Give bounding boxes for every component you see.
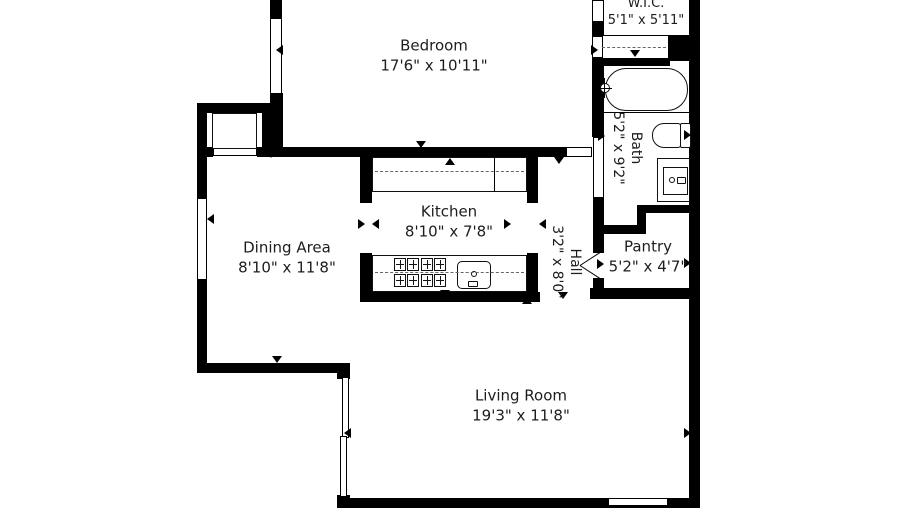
marker-arrow-icon bbox=[276, 45, 283, 55]
stove-burner-icon bbox=[407, 274, 419, 287]
wall bbox=[593, 225, 646, 234]
window-or-door bbox=[340, 436, 347, 497]
fixture-outline bbox=[468, 281, 478, 287]
marker-arrow-icon bbox=[591, 45, 598, 55]
room-name: Kitchen bbox=[405, 203, 493, 223]
window-or-door bbox=[270, 18, 282, 94]
marker-arrow-icon bbox=[518, 500, 528, 507]
room-dimensions: 8'10" x 11'8" bbox=[238, 258, 336, 278]
fixture-outline bbox=[652, 123, 681, 148]
room-dimensions: 3'2" x 8'0" bbox=[548, 225, 566, 298]
thin-line bbox=[494, 157, 495, 192]
room-name: Bedroom bbox=[380, 37, 487, 57]
stove-burner-icon bbox=[421, 258, 433, 271]
stove-burner-icon bbox=[394, 274, 406, 287]
marker-arrow-icon bbox=[416, 141, 426, 148]
marker-arrow-icon bbox=[654, 288, 664, 295]
wall bbox=[592, 22, 604, 36]
stove-burner-icon bbox=[421, 274, 433, 287]
closet-dashed-line bbox=[375, 272, 524, 273]
wall bbox=[197, 363, 350, 373]
marker-arrow-icon bbox=[504, 219, 511, 229]
room-dimensions: 8'10" x 7'8" bbox=[405, 222, 493, 242]
room-label-pantry: Pantry 5'2" x 4'7" bbox=[609, 238, 688, 277]
marker-arrow-icon bbox=[440, 290, 450, 297]
room-dimensions: 17'6" x 10'11" bbox=[380, 56, 487, 76]
floor-plan: Bedroom 17'6" x 10'11" W.I.C. 5'1" x 5'1… bbox=[0, 0, 900, 529]
window-or-door bbox=[592, 0, 604, 22]
wall bbox=[360, 147, 372, 203]
wall bbox=[593, 234, 604, 253]
room-label-bath: Bath 5'2" x 9'2" bbox=[609, 111, 645, 184]
wall bbox=[257, 147, 566, 157]
stove-burner-icon bbox=[434, 274, 446, 287]
wall bbox=[592, 58, 604, 137]
room-dimensions: 5'2" x 4'7" bbox=[609, 257, 688, 277]
wall bbox=[270, 0, 282, 20]
wall bbox=[590, 288, 690, 299]
wall bbox=[360, 292, 540, 302]
marker-arrow-icon bbox=[539, 219, 546, 229]
window-or-door bbox=[608, 498, 668, 506]
room-name: W.I.C. bbox=[608, 0, 684, 13]
window-or-door bbox=[566, 147, 592, 157]
window-or-door bbox=[197, 198, 207, 280]
stove-burner-icon bbox=[394, 258, 406, 271]
stove-burner-icon bbox=[407, 258, 419, 271]
room-name: Dining Area bbox=[238, 239, 336, 259]
room-dimensions: 5'1" x 5'11" bbox=[608, 13, 684, 30]
marker-arrow-icon bbox=[344, 428, 351, 438]
fixture-outline bbox=[212, 113, 257, 149]
marker-arrow-icon bbox=[445, 158, 455, 165]
marker-arrow-icon bbox=[684, 130, 691, 140]
closet-dashed-line bbox=[375, 171, 524, 172]
room-name: Pantry bbox=[609, 238, 688, 258]
room-label-dining: Dining Area 8'10" x 11'8" bbox=[238, 239, 336, 278]
window-or-door bbox=[593, 137, 604, 198]
wall bbox=[668, 35, 689, 61]
marker-arrow-icon bbox=[272, 356, 282, 363]
room-label-living: Living Room 19'3" x 11'8" bbox=[472, 387, 570, 426]
fixture-circle bbox=[669, 177, 675, 183]
marker-arrow-icon bbox=[597, 259, 604, 269]
room-name: Bath bbox=[627, 111, 645, 184]
marker-arrow-icon bbox=[358, 219, 365, 229]
wall bbox=[197, 147, 213, 157]
thin-line bbox=[597, 88, 612, 89]
room-label-kitchen: Kitchen 8'10" x 7'8" bbox=[405, 203, 493, 242]
room-dimensions: 5'2" x 9'2" bbox=[609, 111, 627, 184]
marker-arrow-icon bbox=[266, 151, 276, 158]
marker-arrow-icon bbox=[630, 50, 640, 57]
wall bbox=[527, 147, 538, 203]
stove-burner-icon bbox=[434, 258, 446, 271]
fixture-outline bbox=[677, 177, 686, 184]
wall bbox=[592, 58, 670, 66]
room-label-bedroom: Bedroom 17'6" x 10'11" bbox=[380, 37, 487, 76]
room-dimensions: 19'3" x 11'8" bbox=[472, 406, 570, 426]
marker-arrow-icon bbox=[372, 219, 379, 229]
marker-arrow-icon bbox=[522, 297, 532, 304]
room-name: Living Room bbox=[472, 387, 570, 407]
marker-arrow-icon bbox=[684, 428, 691, 438]
marker-arrow-icon bbox=[207, 214, 214, 224]
closet-dashed-line bbox=[602, 47, 666, 48]
room-label-hall: Hall 3'2" x 8'0" bbox=[548, 225, 584, 298]
fixture-outline bbox=[605, 68, 688, 111]
thin-line bbox=[598, 35, 668, 36]
room-label-wic: W.I.C. 5'1" x 5'11" bbox=[608, 0, 684, 30]
marker-arrow-icon bbox=[554, 157, 564, 164]
marker-arrow-icon bbox=[598, 131, 605, 141]
room-name: Hall bbox=[566, 225, 584, 298]
